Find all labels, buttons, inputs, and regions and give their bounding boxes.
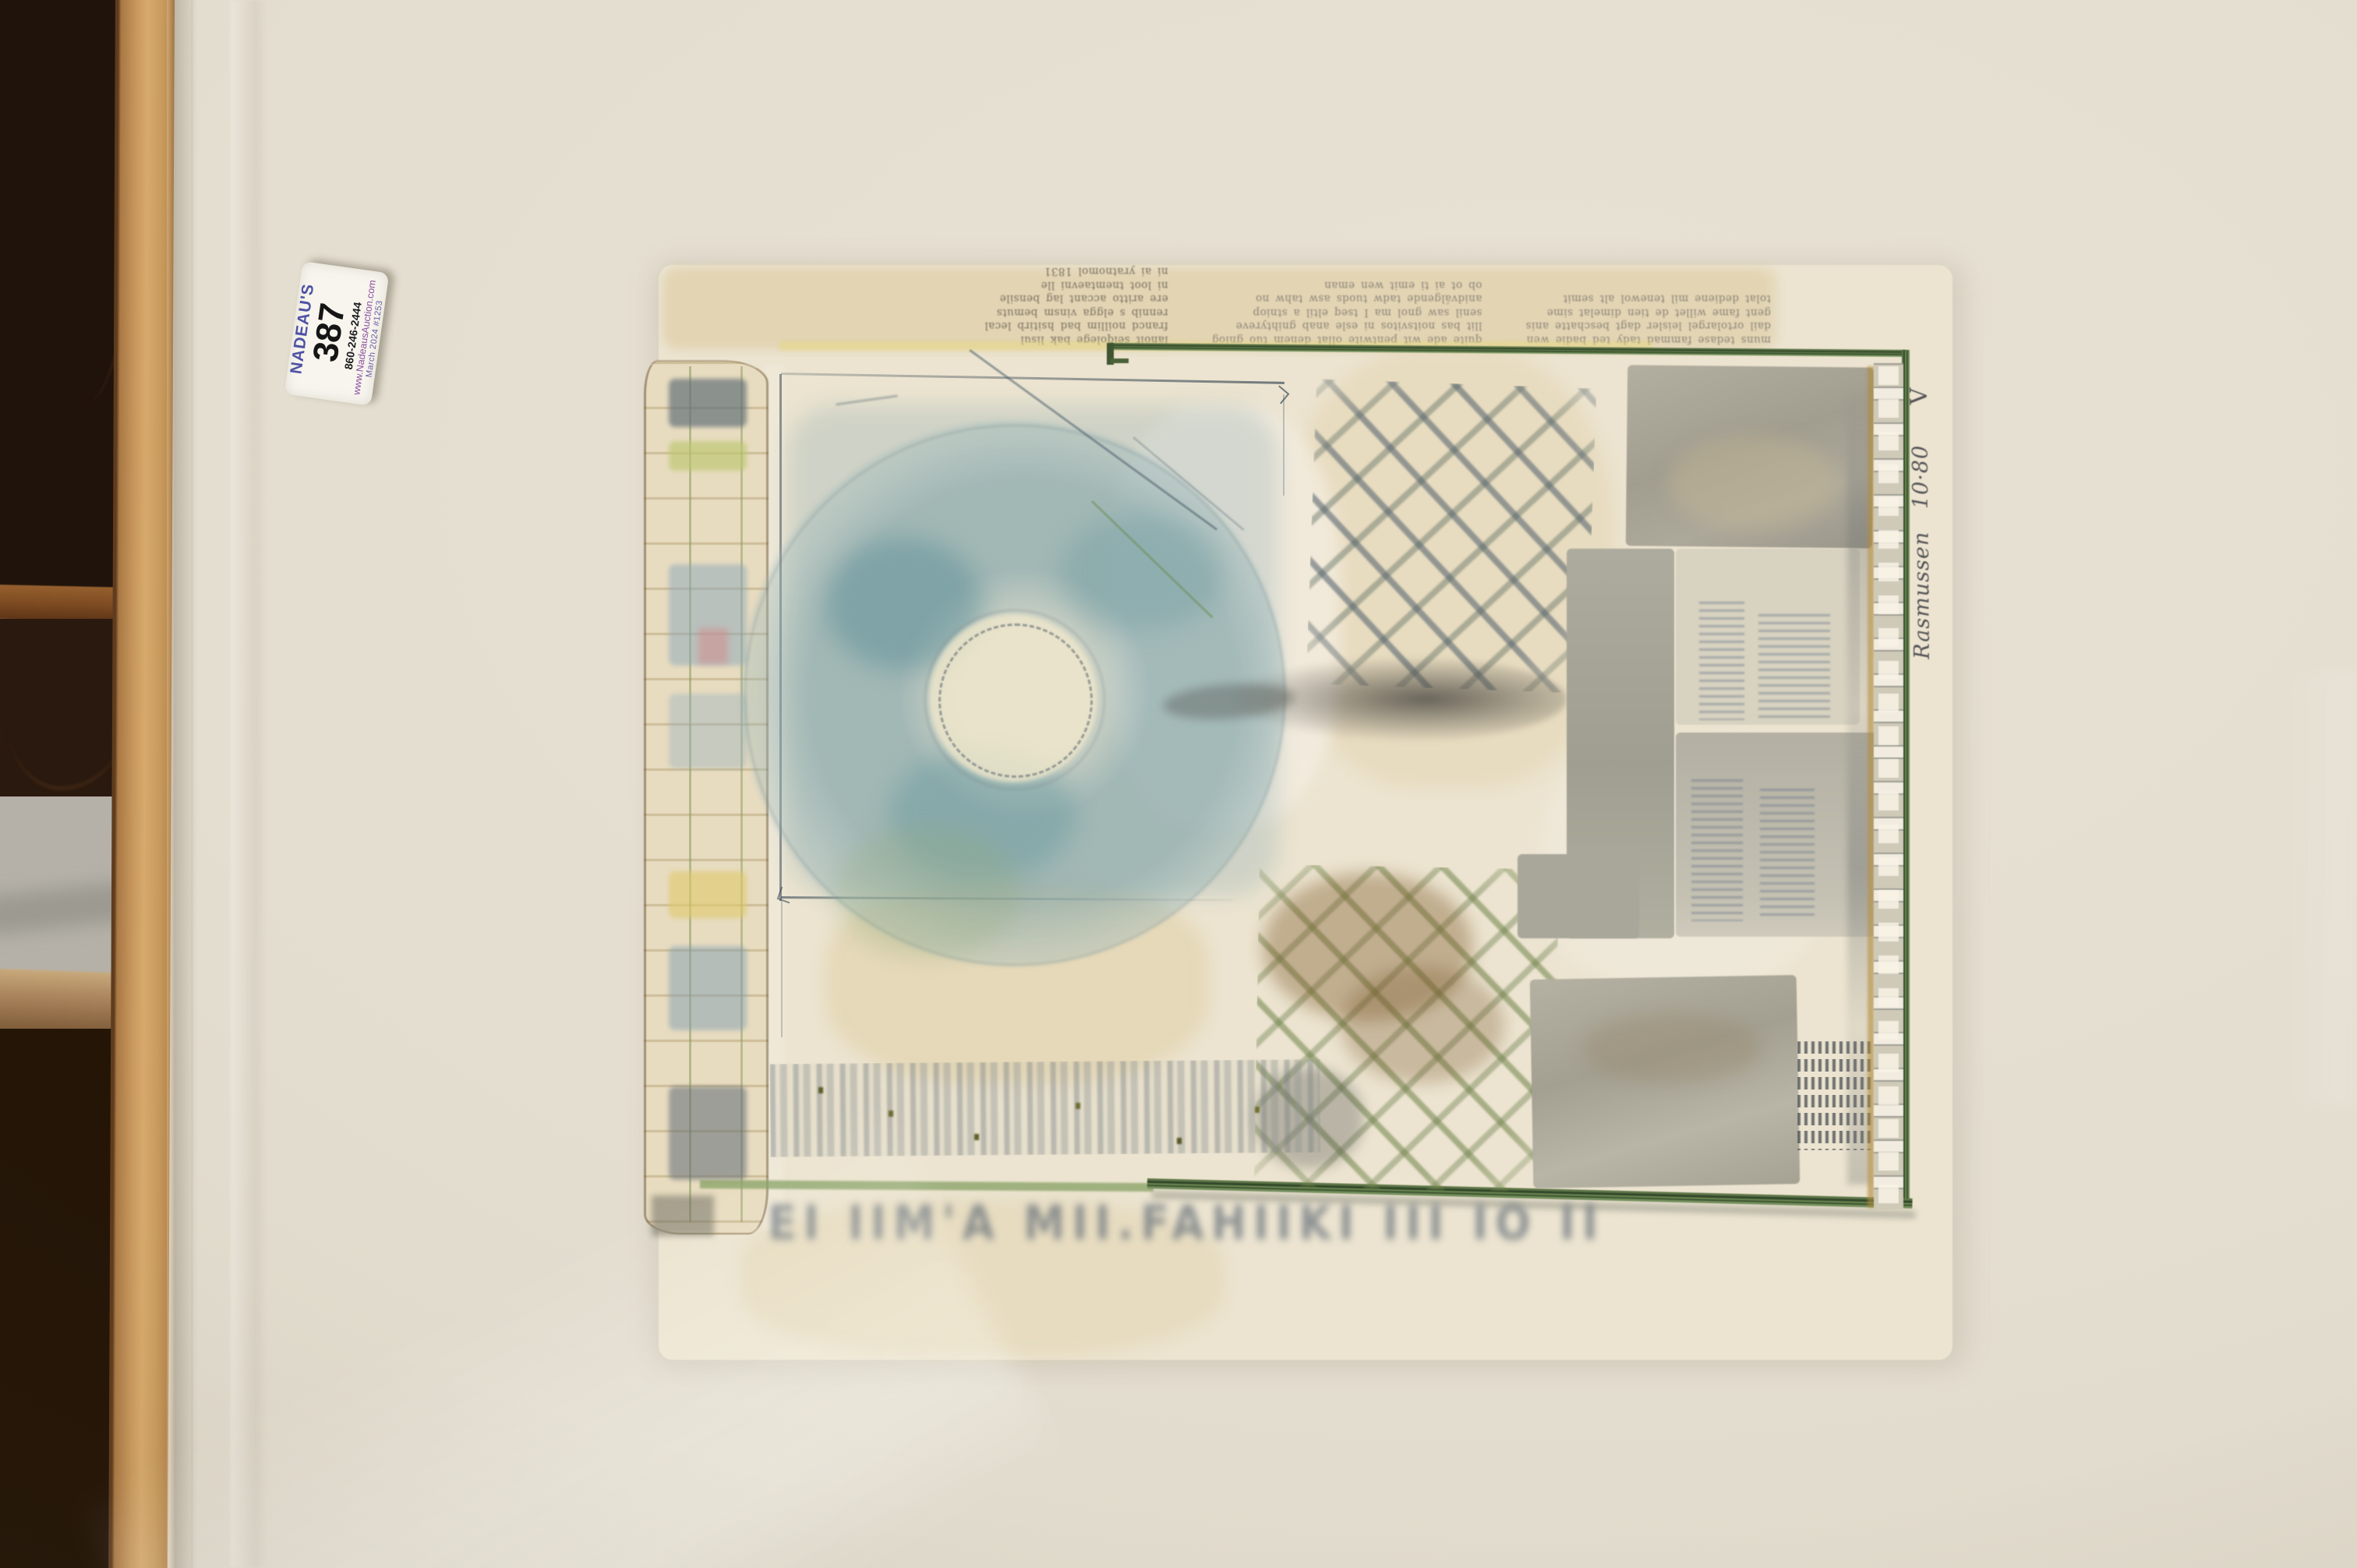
background-dark-lower <box>0 1029 122 1568</box>
disc-deep-blue-patch <box>1060 514 1224 631</box>
glass-reflection-sheen <box>2276 670 2357 1107</box>
filmstrip-block-blue-2 <box>669 946 747 1030</box>
filmstrip-block-pink <box>698 628 728 664</box>
document-text-lines <box>1699 602 1744 720</box>
green-border-corner-step <box>1110 358 1129 363</box>
gray-block-tan-patch <box>1668 436 1839 530</box>
olive-specks <box>818 1087 823 1093</box>
pencil-line-extension <box>781 901 783 1037</box>
newsprint-column: muns tedase fammad tady ted badie wendai… <box>1525 291 1771 346</box>
document-text-lines <box>1691 779 1743 921</box>
chainlink-fence-top <box>1306 379 1596 694</box>
newsprint-column: lanoit seiqolege bak lisulfrancd noillim… <box>984 264 1168 346</box>
mat-crease-line <box>192 0 194 1568</box>
edition-numeral: V <box>1906 387 1933 404</box>
background-wood-rail <box>0 584 128 622</box>
mat-shadow-near-frame <box>175 0 198 1568</box>
glass-reflection-edge <box>231 0 267 1568</box>
pencil-square-right-edge <box>1283 394 1285 496</box>
newsprint-transfer-band: muns tedase fammad tady ted badie wendai… <box>667 271 1771 346</box>
gray-collage-block-small <box>1518 854 1639 938</box>
newsprint-column: quite ade wit pentwite ollat denem tuo g… <box>1212 278 1482 347</box>
document-text-lines <box>1760 789 1815 920</box>
filmstrip-block-paleblue <box>669 694 747 768</box>
document-text-lines <box>1758 614 1830 722</box>
signature-date: 10·80 <box>1909 445 1934 510</box>
frame-inner-sheen <box>167 0 175 1568</box>
filmstrip-sprocket-holes <box>1878 363 1899 1210</box>
artist-signature: Rasmussen 10·80 V <box>1905 332 1935 659</box>
brown-smudge <box>1341 966 1504 1083</box>
filmstrip-block-dark <box>669 1086 747 1180</box>
filmstrip-block-yellowgreen <box>669 441 747 471</box>
signature-name: Rasmussen <box>1910 531 1935 659</box>
picture-frame-edge <box>108 0 175 1568</box>
filmstrip-block-yellow <box>669 871 747 918</box>
gray-block-streak <box>1582 1013 1762 1083</box>
disc-hub-ring <box>924 609 1105 790</box>
filmstrip-block-slate <box>669 379 747 427</box>
auction-lot-sticker: NADEAU'S 387 860-246-2444 www.NadeausAuc… <box>284 261 390 406</box>
auction-photo-stage: muns tedase fammad tady ted badie wendai… <box>0 0 2357 1568</box>
disc-green-tinge <box>834 826 1021 959</box>
